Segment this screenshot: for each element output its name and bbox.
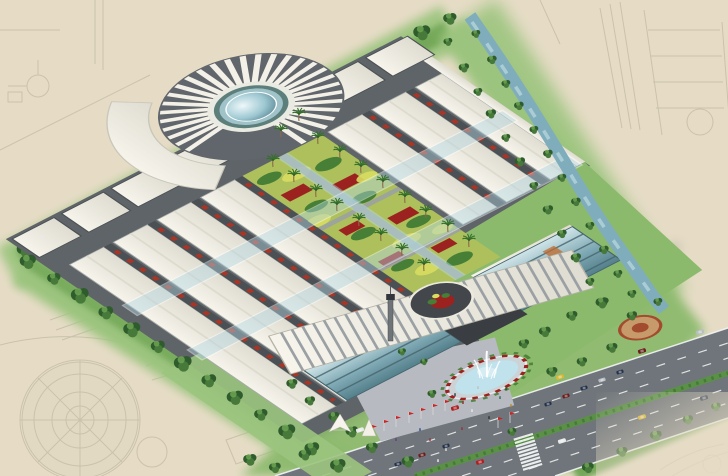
rendering-canvas [0, 0, 728, 476]
corner-fade [596, 392, 728, 476]
architectural-rendering [0, 0, 728, 476]
